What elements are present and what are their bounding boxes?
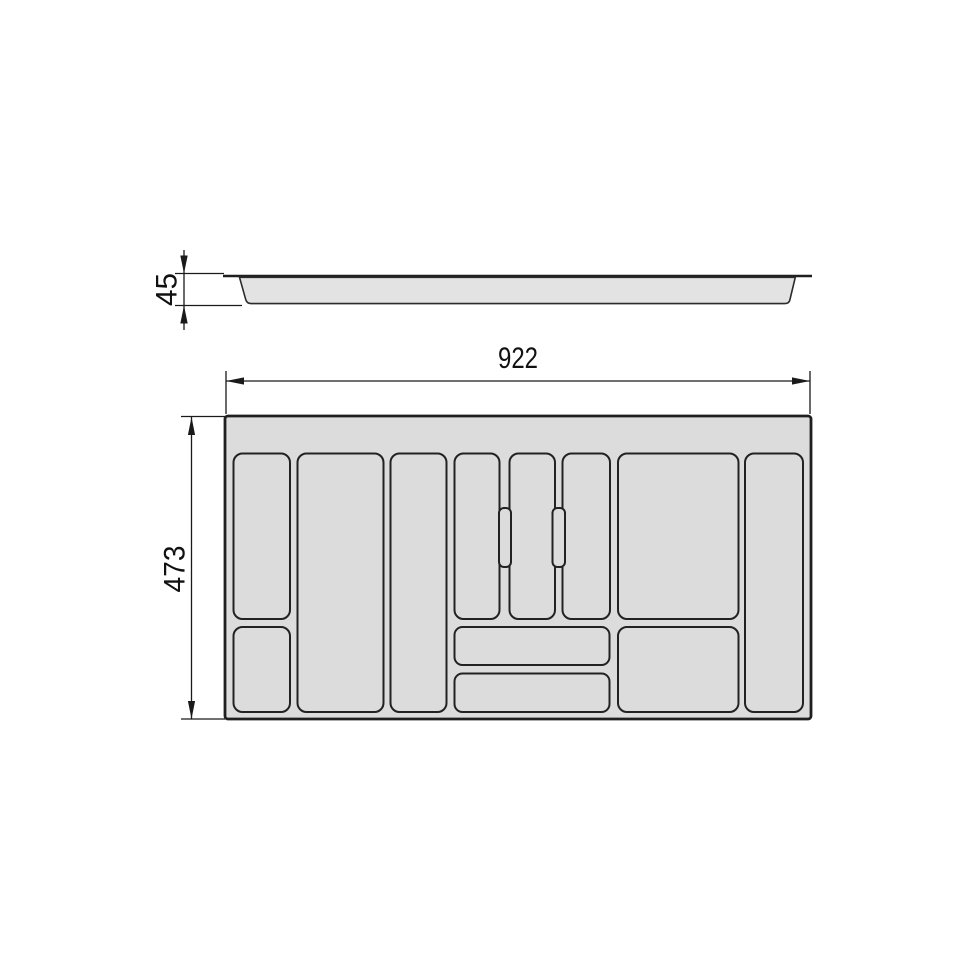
compartment-left-top: [234, 454, 291, 620]
height-arrow-down-icon: [188, 701, 195, 719]
depth-arrow-up-icon: [180, 306, 187, 324]
side-view-tray-body: [240, 277, 796, 303]
top-view: [225, 416, 811, 719]
depth-arrow-down-icon: [180, 256, 187, 274]
cutlery-tray-drawing: 45 922 473: [0, 0, 970, 971]
compartment-right-full: [745, 454, 803, 713]
technical-drawing-canvas: 45 922 473: [0, 0, 970, 971]
side-view: [223, 276, 812, 304]
compartment-horizontal-2: [455, 674, 610, 713]
width-arrow-right-icon: [792, 377, 810, 384]
knife-slot-2: [553, 508, 566, 567]
compartment-narrow-full: [391, 454, 447, 713]
compartment-middle-2: [510, 454, 556, 620]
depth-dimension-label: 45: [151, 273, 184, 306]
compartment-bottom-right: [618, 627, 739, 712]
width-dimension-label: 922: [498, 342, 538, 375]
compartment-middle-3: [563, 454, 611, 620]
compartment-horizontal-1: [455, 627, 610, 665]
height-arrow-up-icon: [188, 417, 195, 435]
compartment-middle-1: [455, 454, 500, 620]
depth-dimension: 45: [151, 250, 243, 330]
compartment-wide-full: [298, 454, 384, 713]
width-dimension: 922: [226, 342, 810, 414]
height-dimension-label: 473: [159, 546, 192, 593]
compartment-large-top: [618, 454, 739, 620]
height-dimension: 473: [159, 417, 226, 720]
knife-slot-1: [499, 508, 511, 567]
width-arrow-left-icon: [226, 377, 244, 384]
compartment-left-bottom: [234, 627, 291, 712]
